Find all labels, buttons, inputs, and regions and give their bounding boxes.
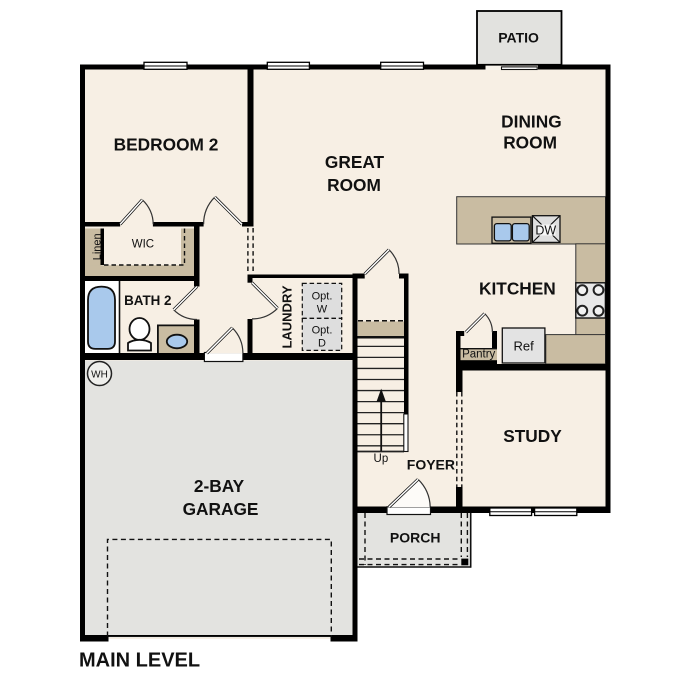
svg-text:LAUNDRY: LAUNDRY (280, 285, 295, 348)
svg-text:FOYER: FOYER (407, 457, 455, 473)
svg-text:BEDROOM 2: BEDROOM 2 (114, 135, 219, 155)
svg-text:GREAT: GREAT (325, 152, 385, 172)
svg-text:WIC: WIC (132, 238, 154, 250)
svg-text:Opt.: Opt. (312, 291, 333, 303)
svg-text:2-BAY: 2-BAY (194, 476, 245, 496)
svg-text:MAIN LEVEL: MAIN LEVEL (79, 650, 200, 672)
svg-text:Opt.: Opt. (312, 325, 333, 337)
svg-text:STUDY: STUDY (503, 426, 562, 446)
svg-text:ROOM: ROOM (503, 133, 557, 153)
svg-text:BATH 2: BATH 2 (124, 293, 171, 308)
svg-text:DINING: DINING (501, 112, 561, 132)
svg-text:W: W (317, 304, 328, 316)
svg-text:ROOM: ROOM (327, 175, 381, 195)
svg-text:GARAGE: GARAGE (183, 499, 259, 519)
svg-text:Ref: Ref (513, 338, 534, 353)
svg-text:WH: WH (91, 369, 108, 380)
svg-text:Pantry: Pantry (462, 348, 495, 360)
svg-text:PATIO: PATIO (498, 30, 539, 46)
svg-text:DW: DW (535, 224, 556, 238)
svg-text:Linen: Linen (91, 233, 103, 260)
svg-text:D: D (318, 338, 326, 350)
svg-text:Up: Up (374, 453, 389, 465)
svg-text:KITCHEN: KITCHEN (479, 278, 556, 298)
svg-text:PORCH: PORCH (390, 529, 441, 545)
